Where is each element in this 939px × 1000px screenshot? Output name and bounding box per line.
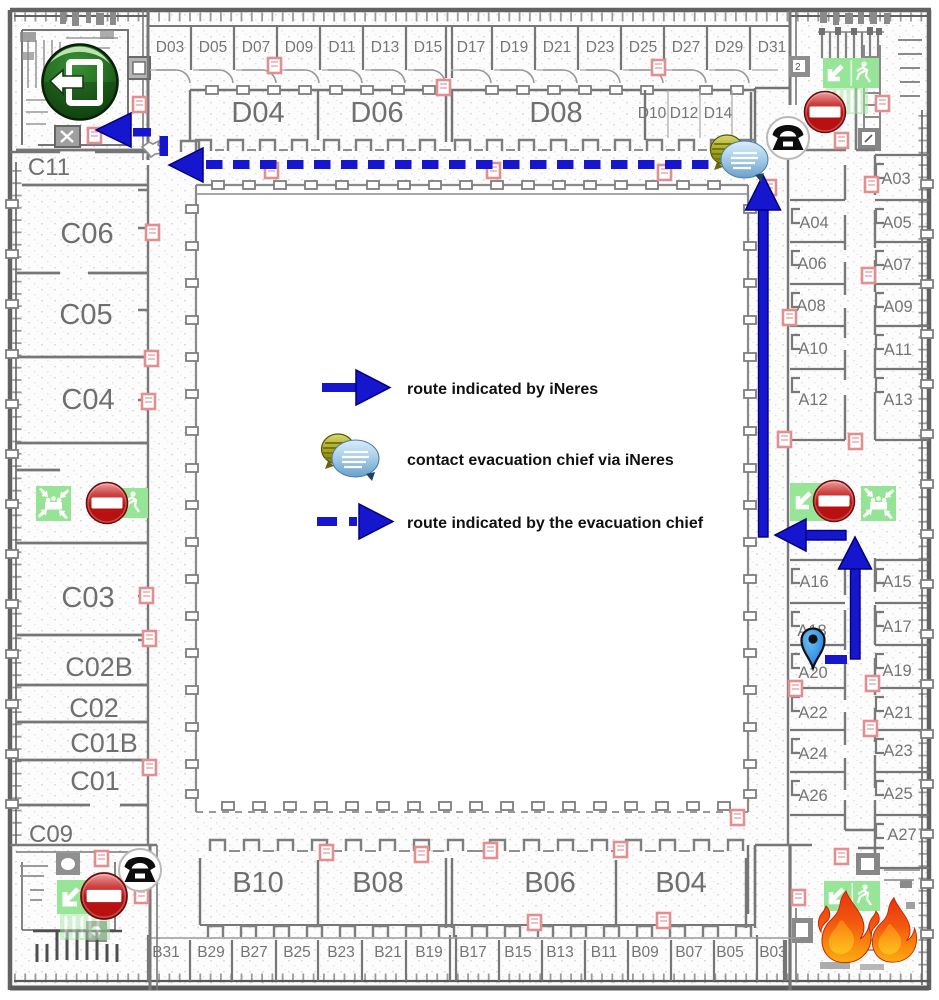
svg-text:route indicated by the evacuat: route indicated by the evacuation chief xyxy=(407,515,704,532)
svg-text:C02: C02 xyxy=(69,693,119,723)
svg-text:B05: B05 xyxy=(716,944,744,961)
svg-text:C02B: C02B xyxy=(65,652,133,682)
svg-text:D13: D13 xyxy=(371,39,399,56)
svg-text:D31: D31 xyxy=(758,39,786,56)
svg-text:C06: C06 xyxy=(60,218,113,250)
svg-text:A07: A07 xyxy=(882,256,911,274)
svg-text:A12: A12 xyxy=(798,391,827,409)
svg-text:B11: B11 xyxy=(591,944,617,961)
svg-text:B27: B27 xyxy=(240,944,268,961)
svg-text:D14: D14 xyxy=(704,105,733,122)
svg-text:A09: A09 xyxy=(883,298,912,316)
svg-text:C01B: C01B xyxy=(70,728,138,758)
svg-text:D06: D06 xyxy=(350,97,403,129)
svg-text:B31: B31 xyxy=(152,944,180,961)
svg-text:A05: A05 xyxy=(882,214,911,232)
svg-text:A17: A17 xyxy=(882,618,911,636)
svg-text:C04: C04 xyxy=(61,384,114,416)
svg-text:B29: B29 xyxy=(197,944,225,961)
svg-text:A06: A06 xyxy=(797,255,826,273)
svg-text:D11: D11 xyxy=(328,39,355,56)
svg-text:D25: D25 xyxy=(629,39,657,56)
svg-text:C05: C05 xyxy=(59,299,112,331)
svg-text:D10: D10 xyxy=(638,105,667,122)
svg-text:A23: A23 xyxy=(883,742,912,760)
svg-text:B09: B09 xyxy=(631,944,659,961)
svg-text:D29: D29 xyxy=(715,39,743,56)
svg-text:C09: C09 xyxy=(29,821,73,848)
svg-text:D15: D15 xyxy=(414,39,442,56)
svg-text:D19: D19 xyxy=(500,39,528,56)
svg-text:C11: C11 xyxy=(28,154,70,181)
svg-text:B07: B07 xyxy=(675,944,703,961)
svg-text:D23: D23 xyxy=(586,39,614,56)
svg-text:D27: D27 xyxy=(672,39,700,56)
svg-text:A22: A22 xyxy=(798,704,827,722)
svg-text:A08: A08 xyxy=(796,297,825,315)
svg-text:D21: D21 xyxy=(543,39,571,56)
svg-text:2: 2 xyxy=(795,62,801,73)
svg-text:A10: A10 xyxy=(798,340,827,358)
svg-text:D12: D12 xyxy=(670,105,698,122)
svg-text:route indicated by iNeres: route indicated by iNeres xyxy=(407,381,598,398)
svg-text:A04: A04 xyxy=(799,214,828,232)
svg-text:B06: B06 xyxy=(524,867,576,899)
svg-text:A24: A24 xyxy=(798,745,827,763)
svg-text:A27: A27 xyxy=(887,826,916,844)
svg-text:B21: B21 xyxy=(374,944,402,961)
svg-text:A19: A19 xyxy=(882,662,911,680)
svg-text:B13: B13 xyxy=(546,944,574,961)
svg-text:A13: A13 xyxy=(883,391,912,409)
svg-text:A11: A11 xyxy=(884,341,912,359)
svg-text:D04: D04 xyxy=(231,97,284,129)
svg-text:A16: A16 xyxy=(799,573,828,591)
svg-text:C01: C01 xyxy=(70,766,120,796)
svg-text:D09: D09 xyxy=(285,39,313,56)
svg-text:D08: D08 xyxy=(529,97,582,129)
svg-text:B04: B04 xyxy=(655,867,707,899)
svg-text:D03: D03 xyxy=(156,39,184,56)
svg-text:A26: A26 xyxy=(798,787,827,805)
svg-text:A15: A15 xyxy=(882,573,911,591)
svg-text:B19: B19 xyxy=(415,944,443,961)
svg-text:D17: D17 xyxy=(457,39,485,56)
svg-text:B23: B23 xyxy=(327,944,355,961)
svg-text:B15: B15 xyxy=(504,944,532,961)
svg-text:B10: B10 xyxy=(232,867,284,899)
svg-text:D07: D07 xyxy=(242,39,270,56)
svg-text:contact evacuation chief via i: contact evacuation chief via iNeres xyxy=(407,452,674,469)
svg-text:B17: B17 xyxy=(459,944,487,961)
svg-text:A25: A25 xyxy=(883,785,912,803)
svg-text:A21: A21 xyxy=(883,704,912,722)
svg-text:B03: B03 xyxy=(759,944,787,961)
svg-text:A03: A03 xyxy=(881,170,910,188)
svg-text:B08: B08 xyxy=(352,867,404,899)
svg-text:B25: B25 xyxy=(283,944,311,961)
svg-text:D05: D05 xyxy=(199,39,227,56)
svg-text:C03: C03 xyxy=(61,582,114,614)
